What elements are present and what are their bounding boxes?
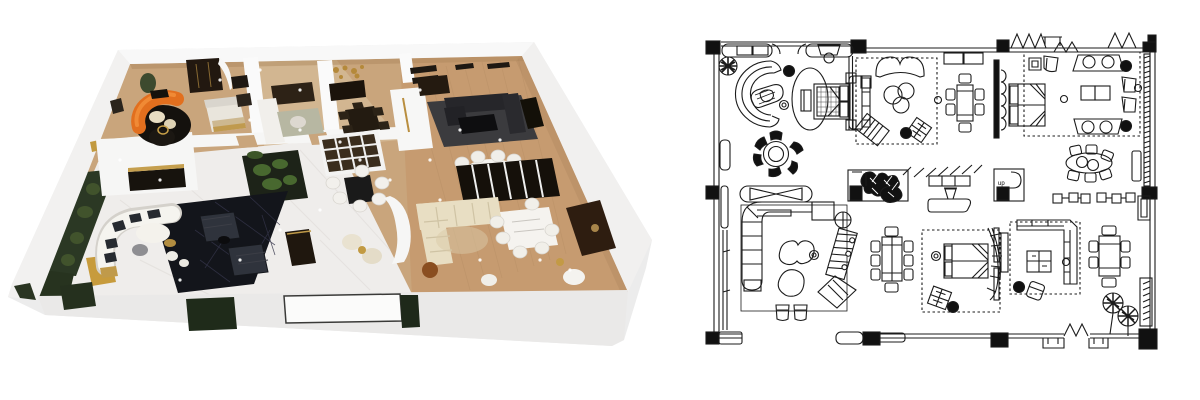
svg-text:up: up (998, 181, 1005, 187)
